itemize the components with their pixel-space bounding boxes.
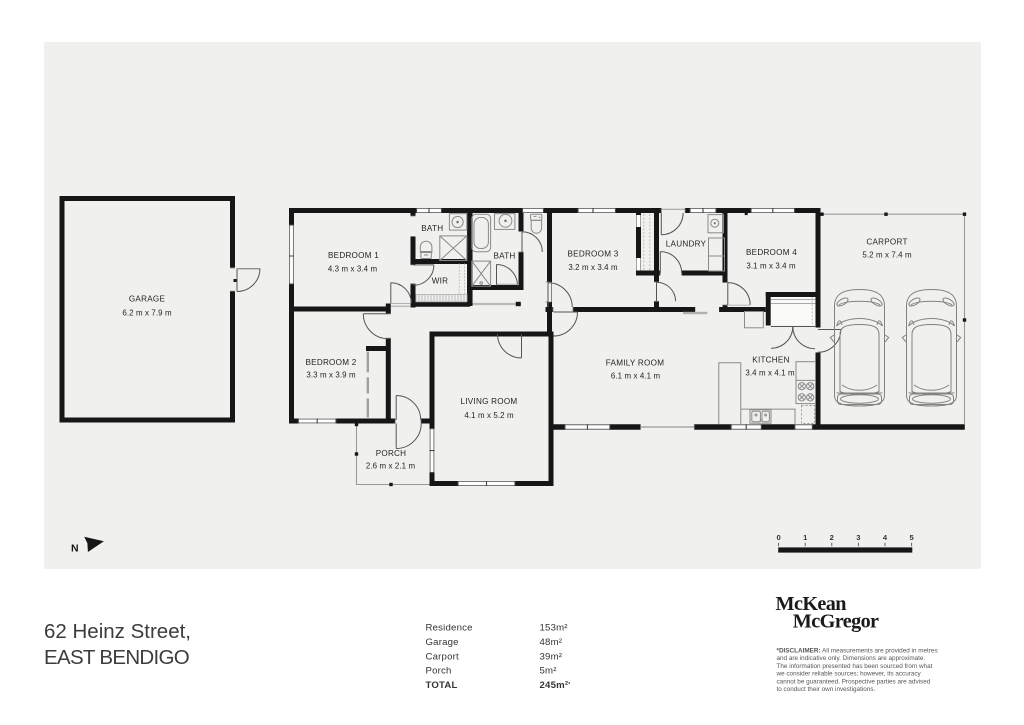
svg-text:48m²: 48m² [540, 637, 563, 648]
svg-text:to conduct their own investiga: to conduct their own investigations. [777, 686, 876, 693]
svg-text:cannot be guaranteed. Prospect: cannot be guaranteed. Prospective partie… [777, 678, 931, 685]
svg-text:6.1 m x 4.1 m: 6.1 m x 4.1 m [611, 372, 661, 381]
svg-text:BEDROOM 2: BEDROOM 2 [305, 358, 356, 367]
svg-text:FAMILY ROOM: FAMILY ROOM [606, 359, 664, 368]
svg-text:2: 2 [830, 533, 834, 542]
svg-text:153m²: 153m² [540, 623, 569, 634]
svg-text:Porch: Porch [426, 666, 452, 677]
svg-text:Garage: Garage [426, 637, 459, 648]
svg-text:and are indicative only. Dimen: and are indicative only. Dimensions are … [777, 655, 926, 662]
svg-text:62 Heinz Street,: 62 Heinz Street, [44, 620, 191, 643]
svg-text:*DISCLAIMER: All measurements: *DISCLAIMER: All measurements are provid… [777, 647, 938, 654]
svg-text:WIR: WIR [432, 277, 449, 286]
svg-text:2.6 m x 2.1 m: 2.6 m x 2.1 m [366, 462, 416, 471]
svg-text:3.4 m x 4.1 m: 3.4 m x 4.1 m [745, 369, 795, 378]
svg-text:3: 3 [856, 533, 860, 542]
svg-text:Carport: Carport [426, 651, 460, 662]
svg-text:BEDROOM 4: BEDROOM 4 [746, 248, 797, 257]
svg-text:39m²: 39m² [540, 651, 563, 662]
svg-text:McGregor: McGregor [793, 611, 879, 633]
svg-text:GARAGE: GARAGE [129, 294, 166, 303]
svg-text:BATH: BATH [493, 252, 515, 261]
svg-text:The information presented has: The information presented has been sourc… [777, 663, 933, 670]
svg-text:LIVING ROOM: LIVING ROOM [461, 397, 518, 406]
svg-text:4.3 m x 3.4 m: 4.3 m x 3.4 m [328, 265, 378, 274]
svg-text:5m²: 5m² [540, 666, 558, 677]
svg-text:N: N [71, 543, 79, 555]
svg-text:CARPORT: CARPORT [866, 238, 907, 247]
svg-text:PORCH: PORCH [376, 449, 407, 458]
svg-text:4.1 m x 5.2 m: 4.1 m x 5.2 m [464, 411, 514, 420]
svg-text:245m²*: 245m²* [540, 680, 571, 691]
svg-text:3.2 m x 3.4 m: 3.2 m x 3.4 m [568, 263, 618, 272]
svg-text:3.3 m x 3.9 m: 3.3 m x 3.9 m [306, 371, 356, 380]
svg-text:3.1 m x 3.4 m: 3.1 m x 3.4 m [746, 262, 796, 271]
svg-text:5.2 m x 7.4 m: 5.2 m x 7.4 m [862, 250, 912, 259]
svg-text:EAST BENDIGO: EAST BENDIGO [44, 646, 189, 669]
svg-text:TOTAL: TOTAL [426, 680, 458, 691]
svg-text:0: 0 [776, 533, 780, 542]
svg-text:we consider reliable sources;: we consider reliable sources; however, i… [776, 671, 922, 678]
svg-text:6.2 m x 7.9 m: 6.2 m x 7.9 m [122, 308, 172, 317]
svg-text:LAUNDRY: LAUNDRY [666, 240, 707, 249]
svg-text:BATH: BATH [421, 224, 443, 233]
svg-text:Residence: Residence [426, 623, 473, 634]
svg-text:BEDROOM 1: BEDROOM 1 [328, 251, 379, 260]
svg-text:KITCHEN: KITCHEN [752, 356, 789, 365]
svg-text:BEDROOM 3: BEDROOM 3 [567, 250, 618, 259]
